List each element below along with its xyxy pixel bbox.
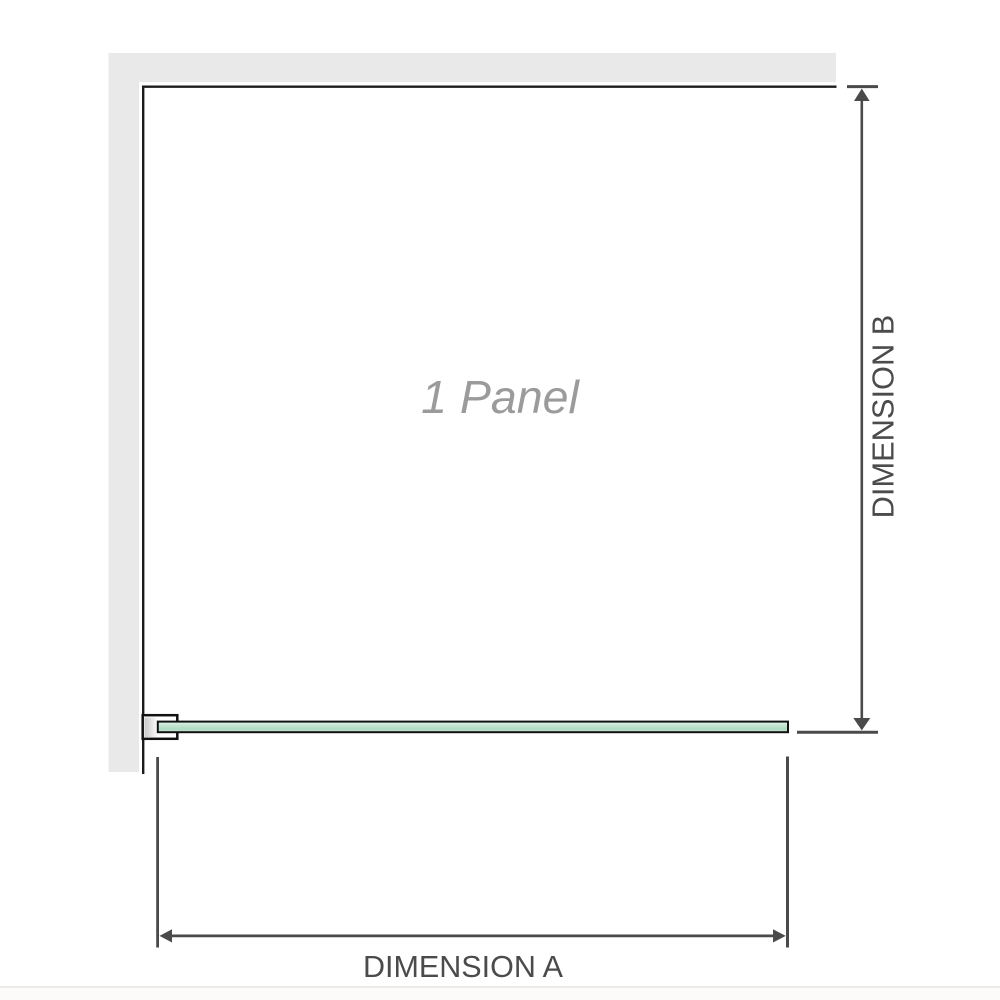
svg-text:1 Panel: 1 Panel — [421, 371, 580, 423]
svg-text:DIMENSION A: DIMENSION A — [363, 950, 564, 984]
svg-text:DIMENSION B: DIMENSION B — [866, 315, 901, 519]
